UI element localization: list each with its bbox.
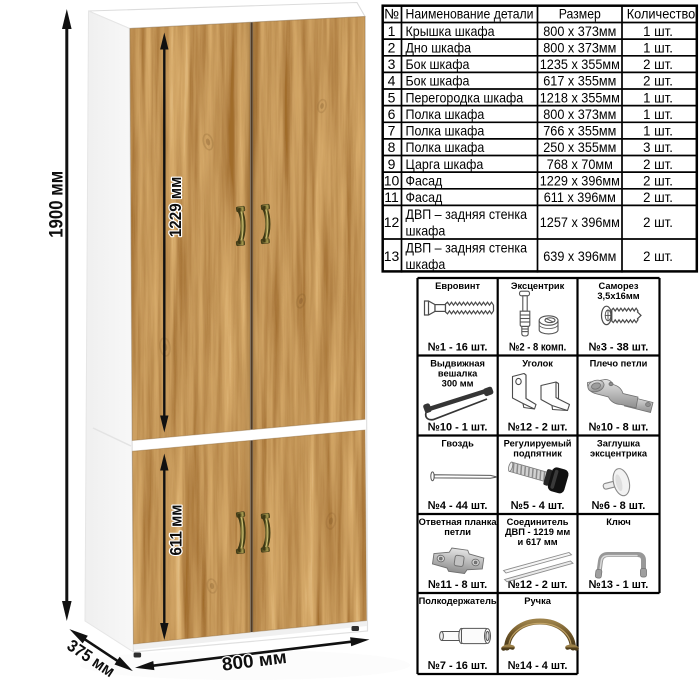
svg-text:2 шт.: 2 шт. — [643, 248, 673, 264]
svg-text:5: 5 — [388, 89, 396, 105]
svg-text:1 шт.: 1 шт. — [643, 89, 673, 105]
svg-text:4: 4 — [388, 73, 396, 89]
svg-text:Эксцентрик: Эксцентрик — [511, 281, 565, 291]
svg-text:2 шт.: 2 шт. — [643, 189, 673, 205]
svg-text:№12 - 2 шт.: №12 - 2 шт. — [508, 422, 568, 434]
svg-text:Ключ: Ключ — [606, 517, 631, 527]
svg-text:№11 - 8 шт.: №11 - 8 шт. — [428, 579, 487, 591]
svg-text:800 х 373мм: 800 х 373мм — [543, 39, 616, 55]
svg-text:800 х 373мм: 800 х 373мм — [543, 23, 616, 39]
svg-text:№10 - 1 шт.: №10 - 1 шт. — [428, 422, 488, 434]
svg-text:№: № — [384, 6, 399, 22]
svg-text:эксцентрика: эксцентрика — [590, 448, 648, 458]
svg-text:639 х 396мм: 639 х 396мм — [543, 248, 616, 264]
svg-text:подпятник: подпятник — [513, 448, 562, 458]
svg-text:1257 х 396мм: 1257 х 396мм — [540, 214, 620, 230]
svg-text:Плечо петли: Плечо петли — [590, 359, 648, 369]
svg-text:вешалка: вешалка — [438, 368, 478, 378]
svg-text:1229 мм: 1229 мм — [167, 177, 185, 238]
svg-text:250 х 355мм: 250 х 355мм — [543, 139, 616, 155]
svg-text:№5 - 4 шт.: №5 - 4 шт. — [511, 500, 565, 512]
svg-text:2 шт.: 2 шт. — [643, 56, 673, 72]
svg-text:Заглушка: Заглушка — [597, 439, 641, 449]
svg-text:№1 - 16 шт.: №1 - 16 шт. — [428, 342, 488, 354]
svg-text:№12 - 2 шт.: №12 - 2 шт. — [508, 579, 568, 591]
svg-text:№14 - 4 шт.: №14 - 4 шт. — [508, 660, 568, 672]
svg-text:Полка шкафа: Полка шкафа — [406, 139, 485, 155]
svg-text:и 617 мм: и 617 мм — [518, 537, 558, 547]
svg-text:Полкодержатель: Полкодержатель — [419, 596, 497, 606]
svg-text:№4 - 44 шт.: №4 - 44 шт. — [428, 500, 488, 512]
svg-text:1900 мм: 1900 мм — [47, 171, 68, 238]
svg-text:10: 10 — [384, 173, 400, 189]
svg-text:Евровинт: Евровинт — [435, 281, 480, 291]
svg-text:2: 2 — [388, 39, 396, 55]
svg-text:ДВП - 1219 мм: ДВП - 1219 мм — [505, 527, 570, 537]
svg-text:Полка шкафа: Полка шкафа — [406, 106, 485, 122]
svg-text:№6 - 8 шт.: №6 - 8 шт. — [592, 500, 646, 512]
svg-text:617 х 355мм: 617 х 355мм — [543, 73, 616, 89]
svg-text:Дно шкафа: Дно шкафа — [406, 39, 472, 55]
svg-text:12: 12 — [384, 214, 400, 230]
svg-text:Царга шкафа: Царга шкафа — [406, 156, 484, 172]
svg-text:шкафа: шкафа — [406, 256, 446, 272]
svg-text:№13 - 1 шт.: №13 - 1 шт. — [589, 579, 649, 591]
svg-text:300 мм: 300 мм — [442, 378, 474, 388]
svg-text:11: 11 — [384, 189, 399, 205]
svg-text:611 мм: 611 мм — [167, 505, 185, 556]
svg-text:3: 3 — [388, 56, 396, 72]
svg-text:№7 - 16 шт.: №7 - 16 шт. — [428, 660, 488, 672]
svg-text:611 х 396мм: 611 х 396мм — [544, 189, 616, 205]
svg-text:766 х 355мм: 766 х 355мм — [543, 123, 616, 139]
svg-text:Уголок: Уголок — [522, 359, 553, 369]
svg-text:1229 х 396мм: 1229 х 396мм — [540, 173, 620, 189]
svg-text:Саморез: Саморез — [599, 281, 639, 291]
svg-text:№3 - 38 шт.: №3 - 38 шт. — [589, 342, 649, 354]
svg-text:Регулируемый: Регулируемый — [504, 439, 572, 449]
svg-text:шкафа: шкафа — [406, 223, 446, 239]
svg-text:1235 х 355мм: 1235 х 355мм — [540, 56, 620, 72]
svg-text:1 шт.: 1 шт. — [643, 123, 673, 139]
svg-text:1218 х 355мм: 1218 х 355мм — [540, 89, 620, 105]
svg-text:Фасад: Фасад — [406, 189, 443, 205]
svg-text:1: 1 — [388, 23, 396, 39]
svg-text:петли: петли — [444, 527, 471, 537]
svg-text:Соединитель: Соединитель — [507, 517, 569, 527]
svg-text:№2 - 8 комп.: №2 - 8 комп. — [509, 342, 566, 354]
svg-text:1 шт.: 1 шт. — [643, 23, 673, 39]
svg-text:№10 - 8 шт.: №10 - 8 шт. — [589, 422, 649, 434]
svg-text:3 шт.: 3 шт. — [643, 139, 673, 155]
svg-text:Фасад: Фасад — [406, 173, 443, 189]
svg-text:Гвоздь: Гвоздь — [441, 439, 474, 449]
svg-text:800 х 373мм: 800 х 373мм — [543, 106, 616, 122]
svg-text:6: 6 — [388, 106, 396, 122]
svg-text:1 шт.: 1 шт. — [643, 39, 673, 55]
svg-text:2 шт.: 2 шт. — [643, 73, 673, 89]
svg-text:Ручка: Ручка — [524, 596, 551, 606]
svg-text:Размер: Размер — [559, 6, 601, 22]
svg-text:ДВП – задняя стенка: ДВП – задняя стенка — [406, 240, 528, 256]
svg-text:1 шт.: 1 шт. — [643, 106, 673, 122]
svg-text:9: 9 — [388, 156, 396, 172]
svg-text:ДВП – задняя стенка: ДВП – задняя стенка — [406, 206, 528, 222]
svg-text:768 х 70мм: 768 х 70мм — [547, 156, 613, 172]
svg-text:2 шт.: 2 шт. — [643, 156, 673, 172]
svg-text:Ответная планка: Ответная планка — [419, 517, 498, 527]
svg-text:Бок шкафа: Бок шкафа — [406, 73, 470, 89]
svg-text:Крышка шкафа: Крышка шкафа — [406, 23, 495, 39]
svg-text:3,5х16мм: 3,5х16мм — [597, 291, 639, 301]
svg-text:7: 7 — [388, 123, 396, 139]
svg-text:2 шт.: 2 шт. — [643, 214, 673, 230]
svg-text:8: 8 — [388, 139, 396, 155]
svg-text:Наименование детали: Наименование детали — [406, 6, 534, 22]
svg-text:Бок шкафа: Бок шкафа — [406, 56, 470, 72]
svg-text:2 шт.: 2 шт. — [643, 173, 673, 189]
svg-text:13: 13 — [384, 248, 400, 264]
svg-text:Перегородка шкафа: Перегородка шкафа — [406, 89, 524, 105]
svg-text:Выдвижная: Выдвижная — [430, 359, 485, 369]
svg-text:Количество: Количество — [627, 6, 696, 22]
svg-text:Полка шкафа: Полка шкафа — [406, 123, 485, 139]
